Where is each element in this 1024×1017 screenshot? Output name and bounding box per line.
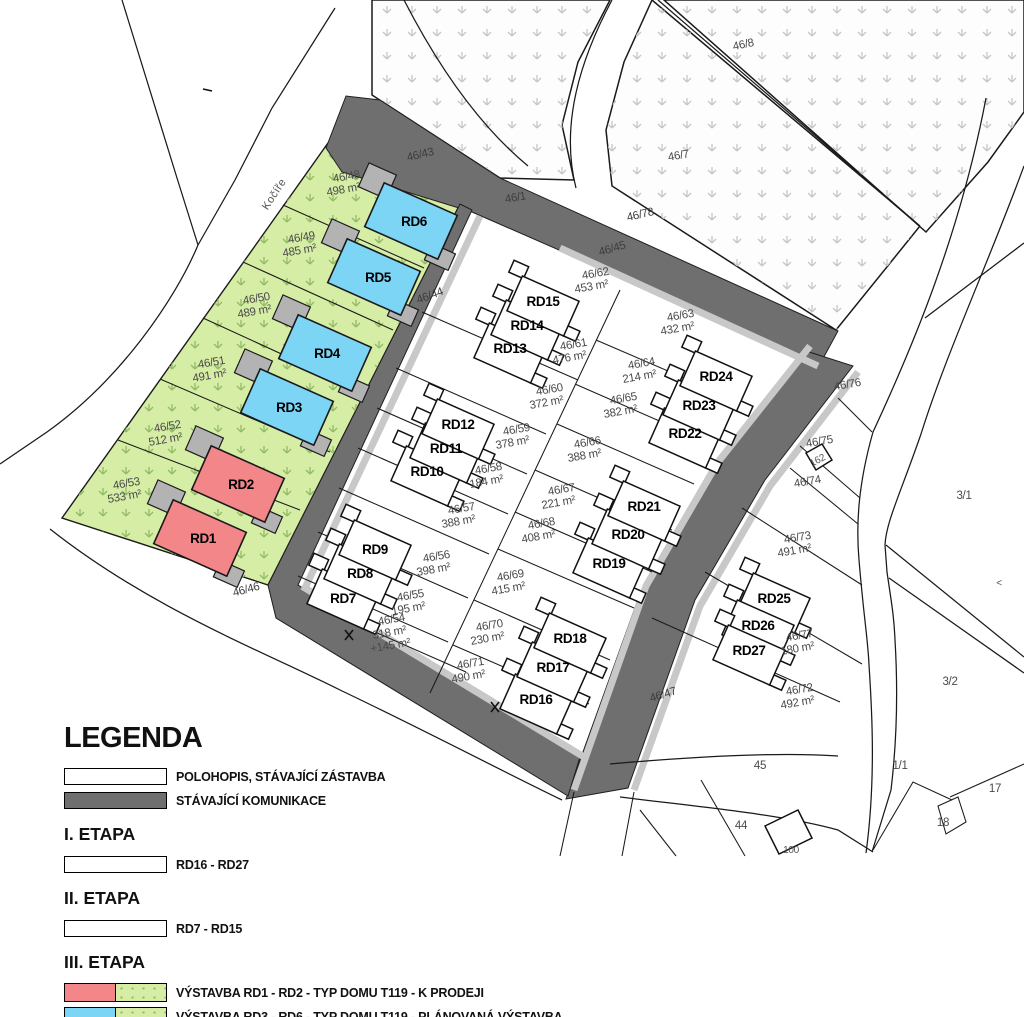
map-label-rd7: RD7 [330, 591, 356, 606]
map-label-44: 44 [735, 820, 748, 832]
map-label-rd2: RD2 [228, 477, 254, 492]
swatch-half-grass [116, 984, 166, 1001]
swatch-red-green [64, 983, 167, 1002]
map-label-rd21: RD21 [628, 499, 662, 514]
map-label-rd24: RD24 [700, 369, 734, 384]
map-label-rd16: RD16 [520, 692, 554, 707]
legend-label: STÁVAJÍCÍ KOMUNIKACE [176, 794, 326, 808]
map-label-rd19: RD19 [593, 556, 626, 571]
etapa2-heading: II. ETAPA [64, 888, 684, 909]
legend-label: VÝSTAVBA RD1 - RD2 - TYP DOMU T119 - K P… [176, 986, 484, 1000]
map-label-100: 100 [783, 845, 800, 856]
map-label-rd12: RD12 [442, 417, 475, 432]
map-label-rd23: RD23 [683, 398, 717, 413]
swatch-half-blue [65, 1008, 116, 1017]
swatch-etapa1 [64, 856, 167, 873]
map-label-45: 45 [754, 760, 766, 772]
map-label-rd20: RD20 [612, 527, 645, 542]
map-label-rd5: RD5 [365, 270, 392, 285]
legend-row-polohopis: POLOHOPIS, STÁVAJÍCÍ ZÁSTAVBA [64, 767, 684, 786]
map-label-rd11: RD11 [430, 441, 463, 456]
map-label-1-1: 1/1 [892, 760, 907, 772]
map-label-rd25: RD25 [758, 591, 792, 606]
map-label-rd8: RD8 [347, 566, 374, 581]
legend-row-etapa3-sale: VÝSTAVBA RD1 - RD2 - TYP DOMU T119 - K P… [64, 983, 684, 1002]
swatch-existing-roads [64, 792, 167, 809]
map-label-3-2: 3/2 [942, 676, 957, 688]
map-label-rd3: RD3 [276, 400, 303, 415]
map-label-rd18: RD18 [554, 631, 588, 646]
legend-row-etapa1: RD16 - RD27 [64, 855, 684, 874]
map-label-rd17: RD17 [537, 660, 570, 675]
map-label-18: 18 [937, 817, 949, 829]
legend-label: VÝSTAVBA RD3 - RD6 - TYP DOMU T119 - PLÁ… [176, 1010, 563, 1017]
map-label-rd9: RD9 [362, 542, 388, 557]
map-label-rd4: RD4 [314, 346, 341, 361]
swatch-blue-green [64, 1007, 167, 1017]
legend-row-komunikace: STÁVAJÍCÍ KOMUNIKACE [64, 791, 684, 810]
map-label-rd10: RD10 [411, 464, 444, 479]
swatch-half-red [65, 984, 116, 1001]
legend-row-etapa3-planned: VÝSTAVBA RD3 - RD6 - TYP DOMU T119 - PLÁ… [64, 1007, 684, 1017]
legend-label: POLOHOPIS, STÁVAJÍCÍ ZÁSTAVBA [176, 770, 386, 784]
map-label-rd13: RD13 [494, 341, 528, 356]
map-label--: < [996, 578, 1002, 589]
map-label-rd15: RD15 [527, 294, 561, 309]
legend-row-etapa2: RD7 - RD15 [64, 919, 684, 938]
swatch-existing-buildings [64, 768, 167, 785]
site-plan-page: Kočíře46/4346/146/4546/7846/4446/4746/46… [0, 0, 1024, 1017]
legend: LEGENDA POLOHOPIS, STÁVAJÍCÍ ZÁSTAVBA ST… [64, 722, 684, 1017]
map-label-rd14: RD14 [511, 318, 545, 333]
etapa3-heading: III. ETAPA [64, 952, 684, 973]
legend-title: LEGENDA [64, 722, 684, 755]
map-label-rd27: RD27 [733, 643, 766, 658]
map-label-rd1: RD1 [190, 531, 217, 546]
swatch-etapa2 [64, 920, 167, 937]
map-label-rd6: RD6 [401, 214, 428, 229]
map-label-rd22: RD22 [669, 426, 702, 441]
legend-label: RD7 - RD15 [176, 922, 242, 936]
legend-label: RD16 - RD27 [176, 858, 249, 872]
map-label-rd26: RD26 [742, 618, 776, 633]
swatch-half-grass [116, 1008, 166, 1017]
etapa1-heading: I. ETAPA [64, 824, 684, 845]
map-label-17: 17 [989, 783, 1001, 795]
map-label-3-1: 3/1 [956, 490, 971, 502]
